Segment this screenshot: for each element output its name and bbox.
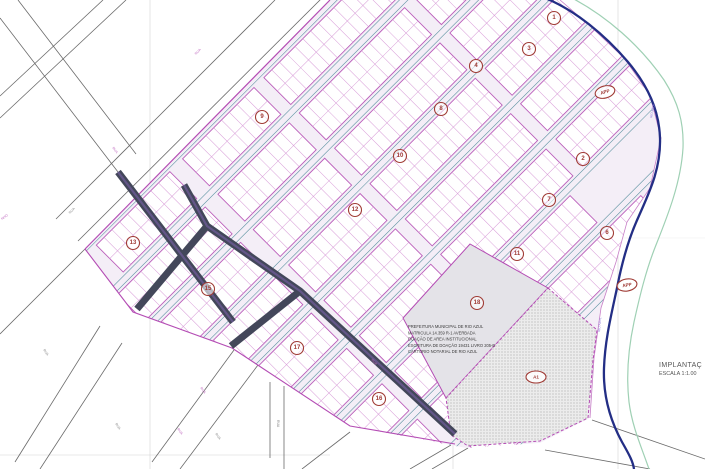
lot-line — [183, 371, 210, 398]
block-number: 11 — [514, 251, 521, 257]
lot-line — [234, 390, 261, 417]
legend-line: PREFEITURA MUNICIPAL DE RIO AZUL — [408, 324, 484, 329]
block-number: 16 — [376, 396, 383, 402]
lot-line — [269, 426, 296, 453]
street-label: RUA — [214, 432, 222, 441]
street-label: RUA — [176, 427, 184, 436]
legend-line: MATRICULA 14.359 R-1 AVERBADA — [408, 330, 476, 335]
lot-line — [246, 450, 273, 469]
lot-line — [303, 463, 330, 469]
lot-line — [198, 355, 225, 382]
drawing-scale: ESCALA 1:1.00 — [659, 371, 696, 377]
lot-line — [147, 336, 174, 363]
lot-line — [326, 440, 353, 467]
area-label: A1 — [533, 375, 539, 380]
river-label: RIO AZUL — [597, 317, 602, 332]
lot-line — [391, 445, 418, 469]
block-number: 12 — [352, 207, 359, 213]
street-label: RUA — [114, 422, 122, 431]
lot-line — [292, 403, 319, 430]
block-number: 15 — [205, 286, 212, 292]
block-number: 18 — [474, 300, 481, 306]
legend-line: DOAÇÃO DE AREA INSTITUCIONAL — [408, 337, 477, 342]
lot-line — [318, 447, 345, 469]
lot-line — [376, 461, 403, 469]
legend-line: ESCRITURA DE DOAÇÃO 19431 LIVRO 205-E — [408, 343, 495, 348]
street-label: RUA — [111, 146, 119, 155]
lot-line — [242, 382, 269, 409]
street-label: RUA — [194, 47, 202, 55]
street-label: NHO — [0, 213, 9, 221]
lot-line — [311, 455, 338, 469]
street-label: RUA — [276, 420, 280, 428]
lot-line — [334, 432, 361, 459]
street-label: RUA — [68, 206, 76, 214]
area-label-group: A1 — [526, 371, 546, 383]
lot-line — [399, 438, 426, 465]
lot-line — [190, 363, 217, 390]
lot-line — [154, 329, 181, 356]
drawing-title: IMPLANTAÇ — [659, 362, 702, 369]
block-number: 13 — [130, 240, 137, 246]
lot-line — [211, 413, 238, 440]
plan-canvas: 123467891011121315161718APPAPPA1RUARUARU… — [0, 0, 705, 469]
site-plan-drawing: 123467891011121315161718APPAPPA1RUARUARU… — [0, 0, 705, 469]
lot-line — [219, 406, 246, 433]
block-number: 10 — [397, 153, 404, 159]
street-label: RUA — [42, 348, 50, 357]
lot-line — [175, 379, 202, 406]
lot-line — [284, 411, 311, 438]
legend-line: CARTORIO NOTARIAL DE RIO AZUL — [408, 349, 478, 354]
lot-line — [383, 453, 410, 469]
street-label: RUA — [199, 386, 207, 395]
lot-line — [250, 375, 277, 402]
block-number: 17 — [294, 345, 301, 351]
title-block: IMPLANTAÇ ESCALA 1:1.00 — [659, 362, 702, 377]
